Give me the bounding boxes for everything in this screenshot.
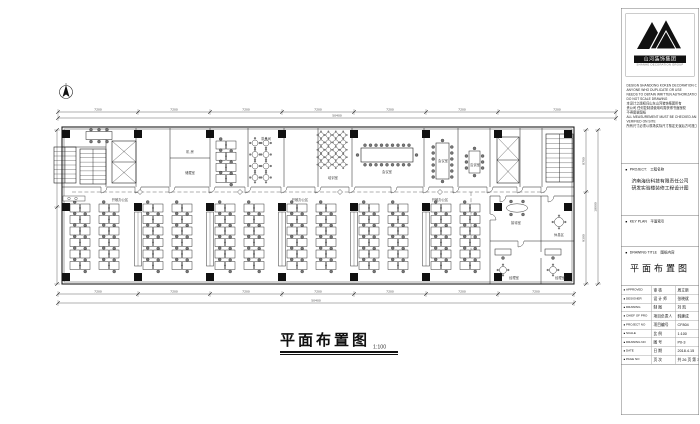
row-label-zh: 页 次 xyxy=(652,356,677,364)
project-section: ■ PROJECT: 工程名称 济南海信科技有限责任公司 研发实验楼装修工程设计… xyxy=(622,164,699,193)
project-header-zh: 工程名称 xyxy=(650,168,664,172)
title-table-row: ■DATE日 期2018.4.15 xyxy=(622,347,699,356)
svg-text:开敞办公区: 开敞办公区 xyxy=(292,197,309,202)
company-name-sub: SHANHE DECORATION GROUP xyxy=(626,64,694,67)
title-table-row: ■SCALE比 例1:100 xyxy=(622,329,699,338)
company-name-band: 山河装饰集团 xyxy=(634,56,686,64)
row-label-en-cell: ■APPROVED xyxy=(622,289,652,292)
svg-text:7200: 7200 xyxy=(170,290,178,294)
row-label-en: DRAWING xyxy=(626,306,640,309)
row-label-en-cell: ■PROJECT NO xyxy=(622,323,652,326)
project-name-line1: 济南海信科技有限责任公司 xyxy=(626,178,695,185)
title-underline-thin xyxy=(280,354,398,355)
row-value: P0-3 xyxy=(676,340,699,345)
svg-text:7200: 7200 xyxy=(458,290,466,294)
svg-text:7200: 7200 xyxy=(314,290,322,294)
row-value: 1:100 xyxy=(676,331,699,336)
svg-text:经理室: 经理室 xyxy=(555,275,566,280)
drawing-title-section: ■ DRAWING TITLE 图纸内容 平面布置图 xyxy=(622,247,699,275)
row-value: 韩建成 xyxy=(676,313,699,319)
title-block: 山河装饰集团 SHANHE DECORATION GROUP DESIGN SH… xyxy=(621,8,699,415)
title-table-row: ■PROJECT NO项目编号CF804 xyxy=(622,321,699,330)
title-underline-thick xyxy=(280,351,398,353)
bullet-square-icon: ■ xyxy=(624,323,626,326)
svg-text:洽谈室: 洽谈室 xyxy=(470,162,481,167)
svg-text:储藏室: 储藏室 xyxy=(185,170,196,175)
title-block-table: ■APPROVED审 核周立新■DESIGNER设 计 师张晓斌■DRAWING… xyxy=(622,286,699,365)
furniture xyxy=(63,128,566,276)
svg-text:7200: 7200 xyxy=(458,108,466,112)
row-value: 共 26 页 第 3 页 xyxy=(676,357,699,363)
svg-text:7200: 7200 xyxy=(242,108,250,112)
keyplan-header: ■ KEY PLAN 平面索引 xyxy=(626,219,695,224)
company-logo-box: 山河装饰集团 SHANHE DECORATION GROUP xyxy=(626,14,695,77)
row-label-en: APPROVED xyxy=(626,289,643,292)
svg-text:会议室: 会议室 xyxy=(438,158,449,163)
svg-text:18000: 18000 xyxy=(594,202,598,212)
bullet-square-icon: ■ xyxy=(624,341,626,344)
project-header: ■ PROJECT: 工程名称 xyxy=(626,167,695,172)
bullet-square-icon: ■ xyxy=(624,297,626,300)
row-label-en-cell: ■DESIGNER xyxy=(622,297,652,300)
svg-text:休息区: 休息区 xyxy=(554,232,565,237)
drawing-title-header: ■ DRAWING TITLE 图纸内容 xyxy=(626,250,695,255)
svg-text:50400: 50400 xyxy=(311,299,321,303)
row-label-en: DATE xyxy=(626,349,634,352)
project-header-en: PROJECT: xyxy=(630,168,647,172)
svg-text:机 房: 机 房 xyxy=(186,149,194,154)
svg-text:50400: 50400 xyxy=(332,114,342,118)
row-label-en-cell: ■DRAWING xyxy=(622,306,652,309)
drawing-title-value: 平面布置图 xyxy=(626,262,695,275)
row-label-en-cell: ■PAGE NO xyxy=(622,358,652,361)
svg-text:7200: 7200 xyxy=(386,108,394,112)
stairs-elevators xyxy=(54,134,573,184)
row-label-zh: 项目负责人 xyxy=(652,312,677,320)
svg-text:7200: 7200 xyxy=(94,290,102,294)
svg-text:茶水间: 茶水间 xyxy=(261,136,271,141)
drawing-title-header-zh: 图纸内容 xyxy=(660,251,674,255)
title-table-row: ■DRAWING制 图刘 凯 xyxy=(622,303,699,312)
bullet-square-icon: ■ xyxy=(626,169,628,172)
svg-text:接待室: 接待室 xyxy=(511,220,522,225)
svg-text:7200: 7200 xyxy=(94,108,102,112)
row-label-zh: 日 期 xyxy=(652,347,677,355)
row-label-zh: 审 核 xyxy=(652,286,677,294)
svg-text:7200: 7200 xyxy=(170,108,178,112)
row-value: 周立新 xyxy=(676,287,699,293)
bullet-square-icon: ■ xyxy=(624,358,626,361)
row-label-en: SCALE xyxy=(626,332,636,335)
bullet-square-icon: ■ xyxy=(624,315,626,318)
row-label-en-cell: ■DRAWING NO xyxy=(622,341,652,344)
keyplan-section: ■ KEY PLAN 平面索引 xyxy=(622,216,699,248)
floor-plan-svg: 7200720072007200720072007200504007200720… xyxy=(0,0,700,424)
svg-text:9300: 9300 xyxy=(582,234,586,242)
bullet-square-icon: ■ xyxy=(624,289,626,292)
row-label-zh: 制 图 xyxy=(652,303,677,311)
bullet-square-icon: ■ xyxy=(626,252,628,255)
title-table-row: ■DESIGNER设 计 师张晓斌 xyxy=(622,295,699,304)
title-table-row: ■APPROVED审 核周立新 xyxy=(622,286,699,295)
row-label-en: DRAWING NO xyxy=(626,341,646,344)
project-name-line2: 研发实验楼装修工程设计图 xyxy=(626,185,695,192)
svg-text:7200: 7200 xyxy=(532,290,540,294)
svg-text:开敞办公区: 开敞办公区 xyxy=(432,197,449,202)
row-label-zh: 比 例 xyxy=(652,329,677,337)
row-label-en: CHIEF OF PRO xyxy=(626,315,647,318)
title-table-row: ■PAGE NO页 次共 26 页 第 3 页 xyxy=(622,356,699,364)
row-value: CF804 xyxy=(676,323,699,328)
bullet-square-icon: ■ xyxy=(624,306,626,309)
svg-text:开敞办公区: 开敞办公区 xyxy=(112,197,129,202)
row-label-zh: 设 计 师 xyxy=(652,295,677,303)
svg-text:会议室: 会议室 xyxy=(382,169,393,174)
row-label-en-cell: ■DATE xyxy=(622,349,652,352)
plan-title-scale: 1:100 xyxy=(373,345,386,350)
row-value: 2018.4.15 xyxy=(676,349,699,354)
plan-title-text: 平面布置图 xyxy=(280,329,370,350)
bullet-square-icon: ■ xyxy=(624,332,626,335)
svg-text:7200: 7200 xyxy=(553,108,561,112)
svg-text:7200: 7200 xyxy=(386,290,394,294)
mountain-logo-icon xyxy=(630,14,690,52)
svg-text:培训室: 培训室 xyxy=(328,175,339,180)
north-arrow xyxy=(60,83,73,99)
svg-text:经理室: 经理室 xyxy=(509,275,520,280)
drawing-title-header-en: DRAWING TITLE xyxy=(630,251,657,255)
svg-text:7200: 7200 xyxy=(314,108,322,112)
keyplan-header-en: KEY PLAN xyxy=(630,220,647,224)
row-label-en: PROJECT NO xyxy=(626,323,645,326)
row-label-en: PAGE NO xyxy=(626,358,639,361)
row-label-en-cell: ■CHIEF OF PRO xyxy=(622,315,652,318)
copyright-notes: DESIGN SHANDONG KOKEN DECORATION CO.,ANY… xyxy=(627,84,697,129)
row-label-zh: 图 号 xyxy=(652,338,677,346)
note-line: 所有尺寸必须以现场实际尺寸核定无误后方可施工 xyxy=(627,124,697,129)
svg-text:8700: 8700 xyxy=(582,157,586,165)
title-table-row: ■DRAWING NO图 号P0-3 xyxy=(622,338,699,347)
plan-title: 平面布置图 1:100 xyxy=(280,329,398,355)
row-label-zh: 项目编号 xyxy=(652,321,677,329)
bullet-square-icon: ■ xyxy=(624,349,626,352)
row-value: 刘 凯 xyxy=(676,305,699,311)
svg-text:7200: 7200 xyxy=(242,290,250,294)
title-table-row: ■CHIEF OF PRO项目负责人韩建成 xyxy=(622,312,699,321)
keyplan-header-zh: 平面索引 xyxy=(650,220,664,224)
row-label-en-cell: ■SCALE xyxy=(622,332,652,335)
bullet-square-icon: ■ xyxy=(626,221,628,224)
row-label-en: DESIGNER xyxy=(626,297,642,300)
row-value: 张晓斌 xyxy=(676,296,699,302)
